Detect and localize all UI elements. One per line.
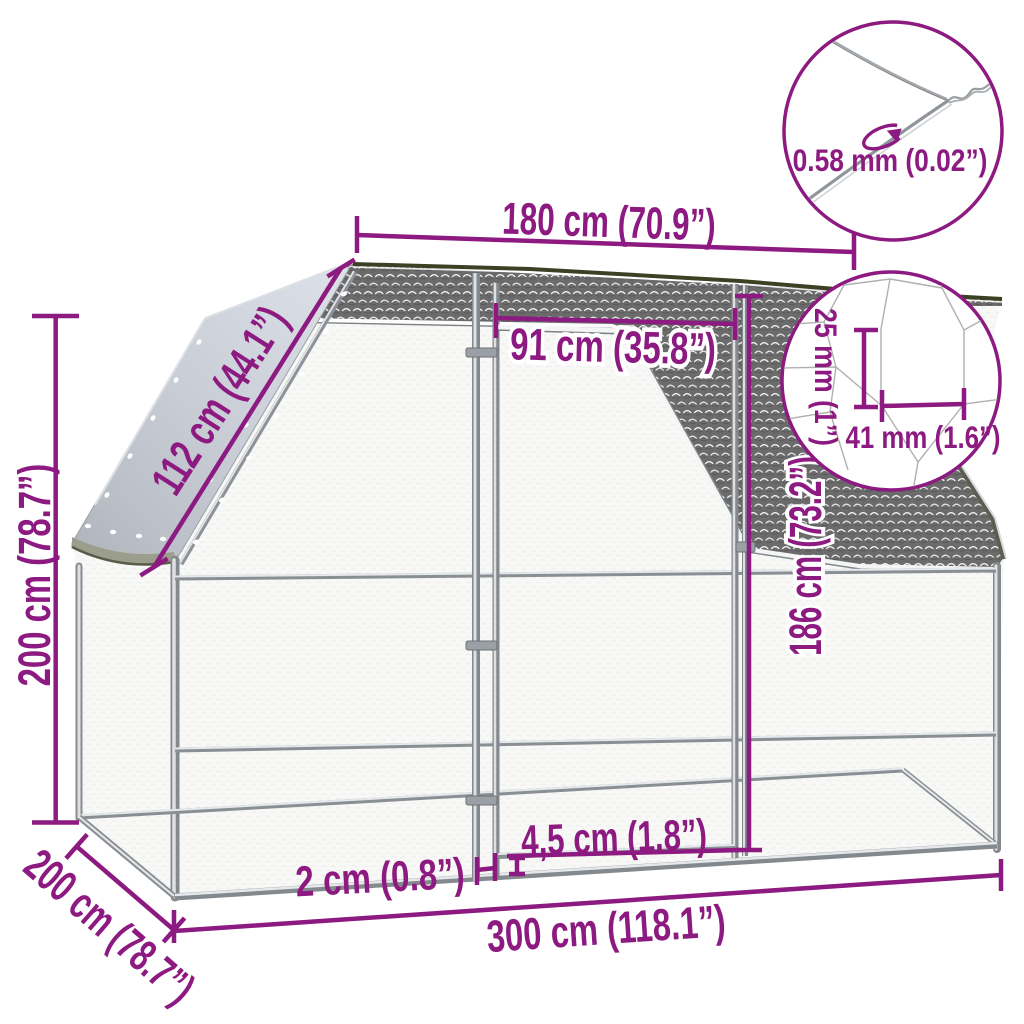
- svg-text:41 mm (1.6”): 41 mm (1.6”): [845, 421, 1000, 456]
- svg-text:186 cm (73.2”): 186 cm (73.2”): [782, 456, 832, 656]
- svg-text:180 cm (70.9”): 180 cm (70.9”): [501, 194, 716, 251]
- svg-text:200 cm (78.7”): 200 cm (78.7”): [10, 464, 60, 687]
- svg-text:91 cm (35.8”): 91 cm (35.8”): [509, 319, 716, 375]
- svg-text:25 mm (1”): 25 mm (1”): [807, 308, 842, 446]
- svg-text:4,5 cm (1.8”): 4,5 cm (1.8”): [520, 810, 707, 864]
- svg-text:0.58 mm (0.02”): 0.58 mm (0.02”): [793, 144, 988, 179]
- svg-text:2 cm (0.8”): 2 cm (0.8”): [294, 850, 466, 907]
